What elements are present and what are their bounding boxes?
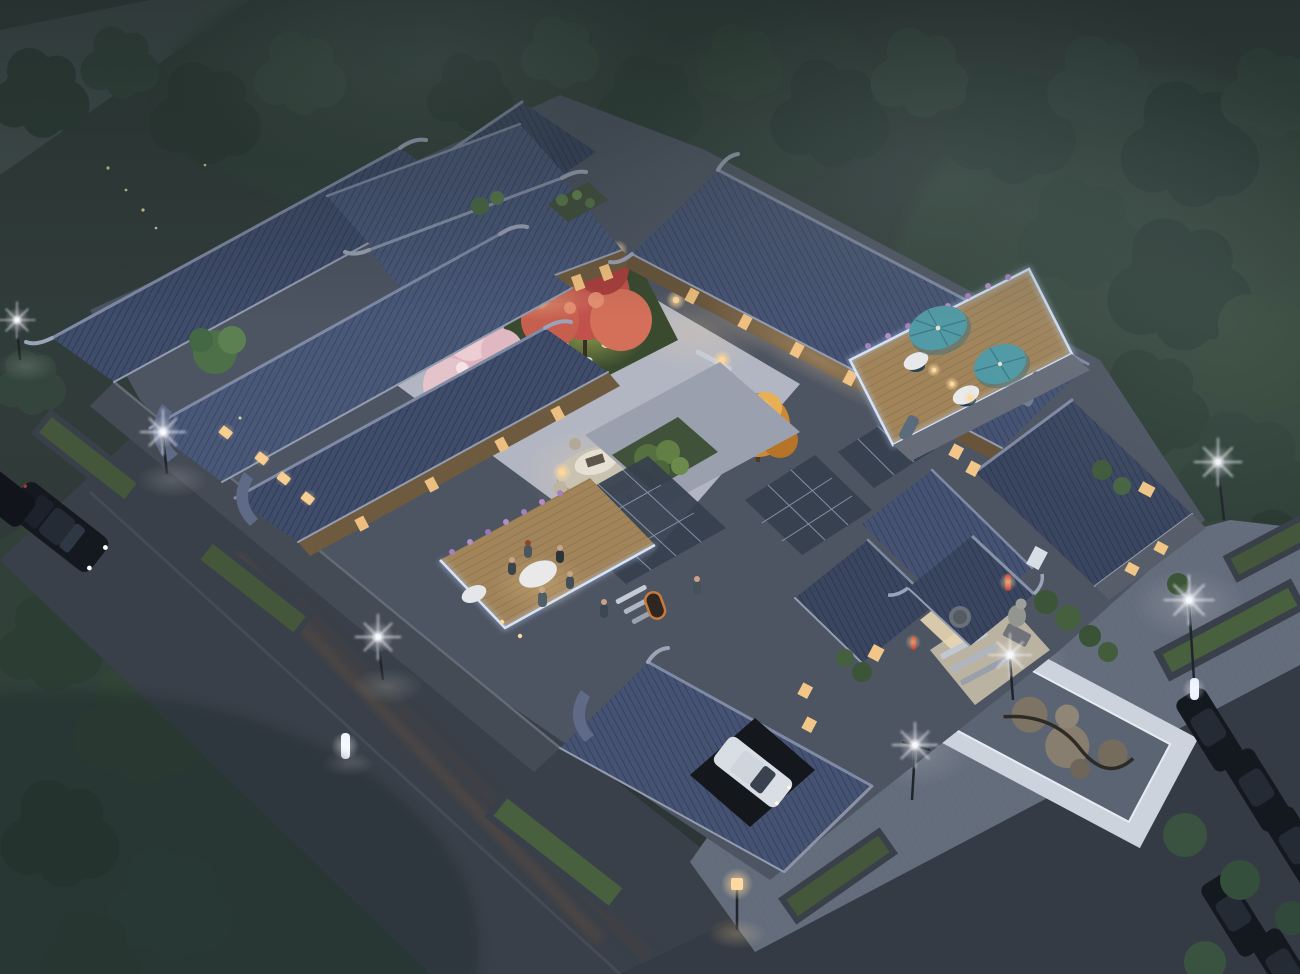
scene — [0, 0, 1300, 974]
rendering-canvas — [0, 0, 1300, 974]
